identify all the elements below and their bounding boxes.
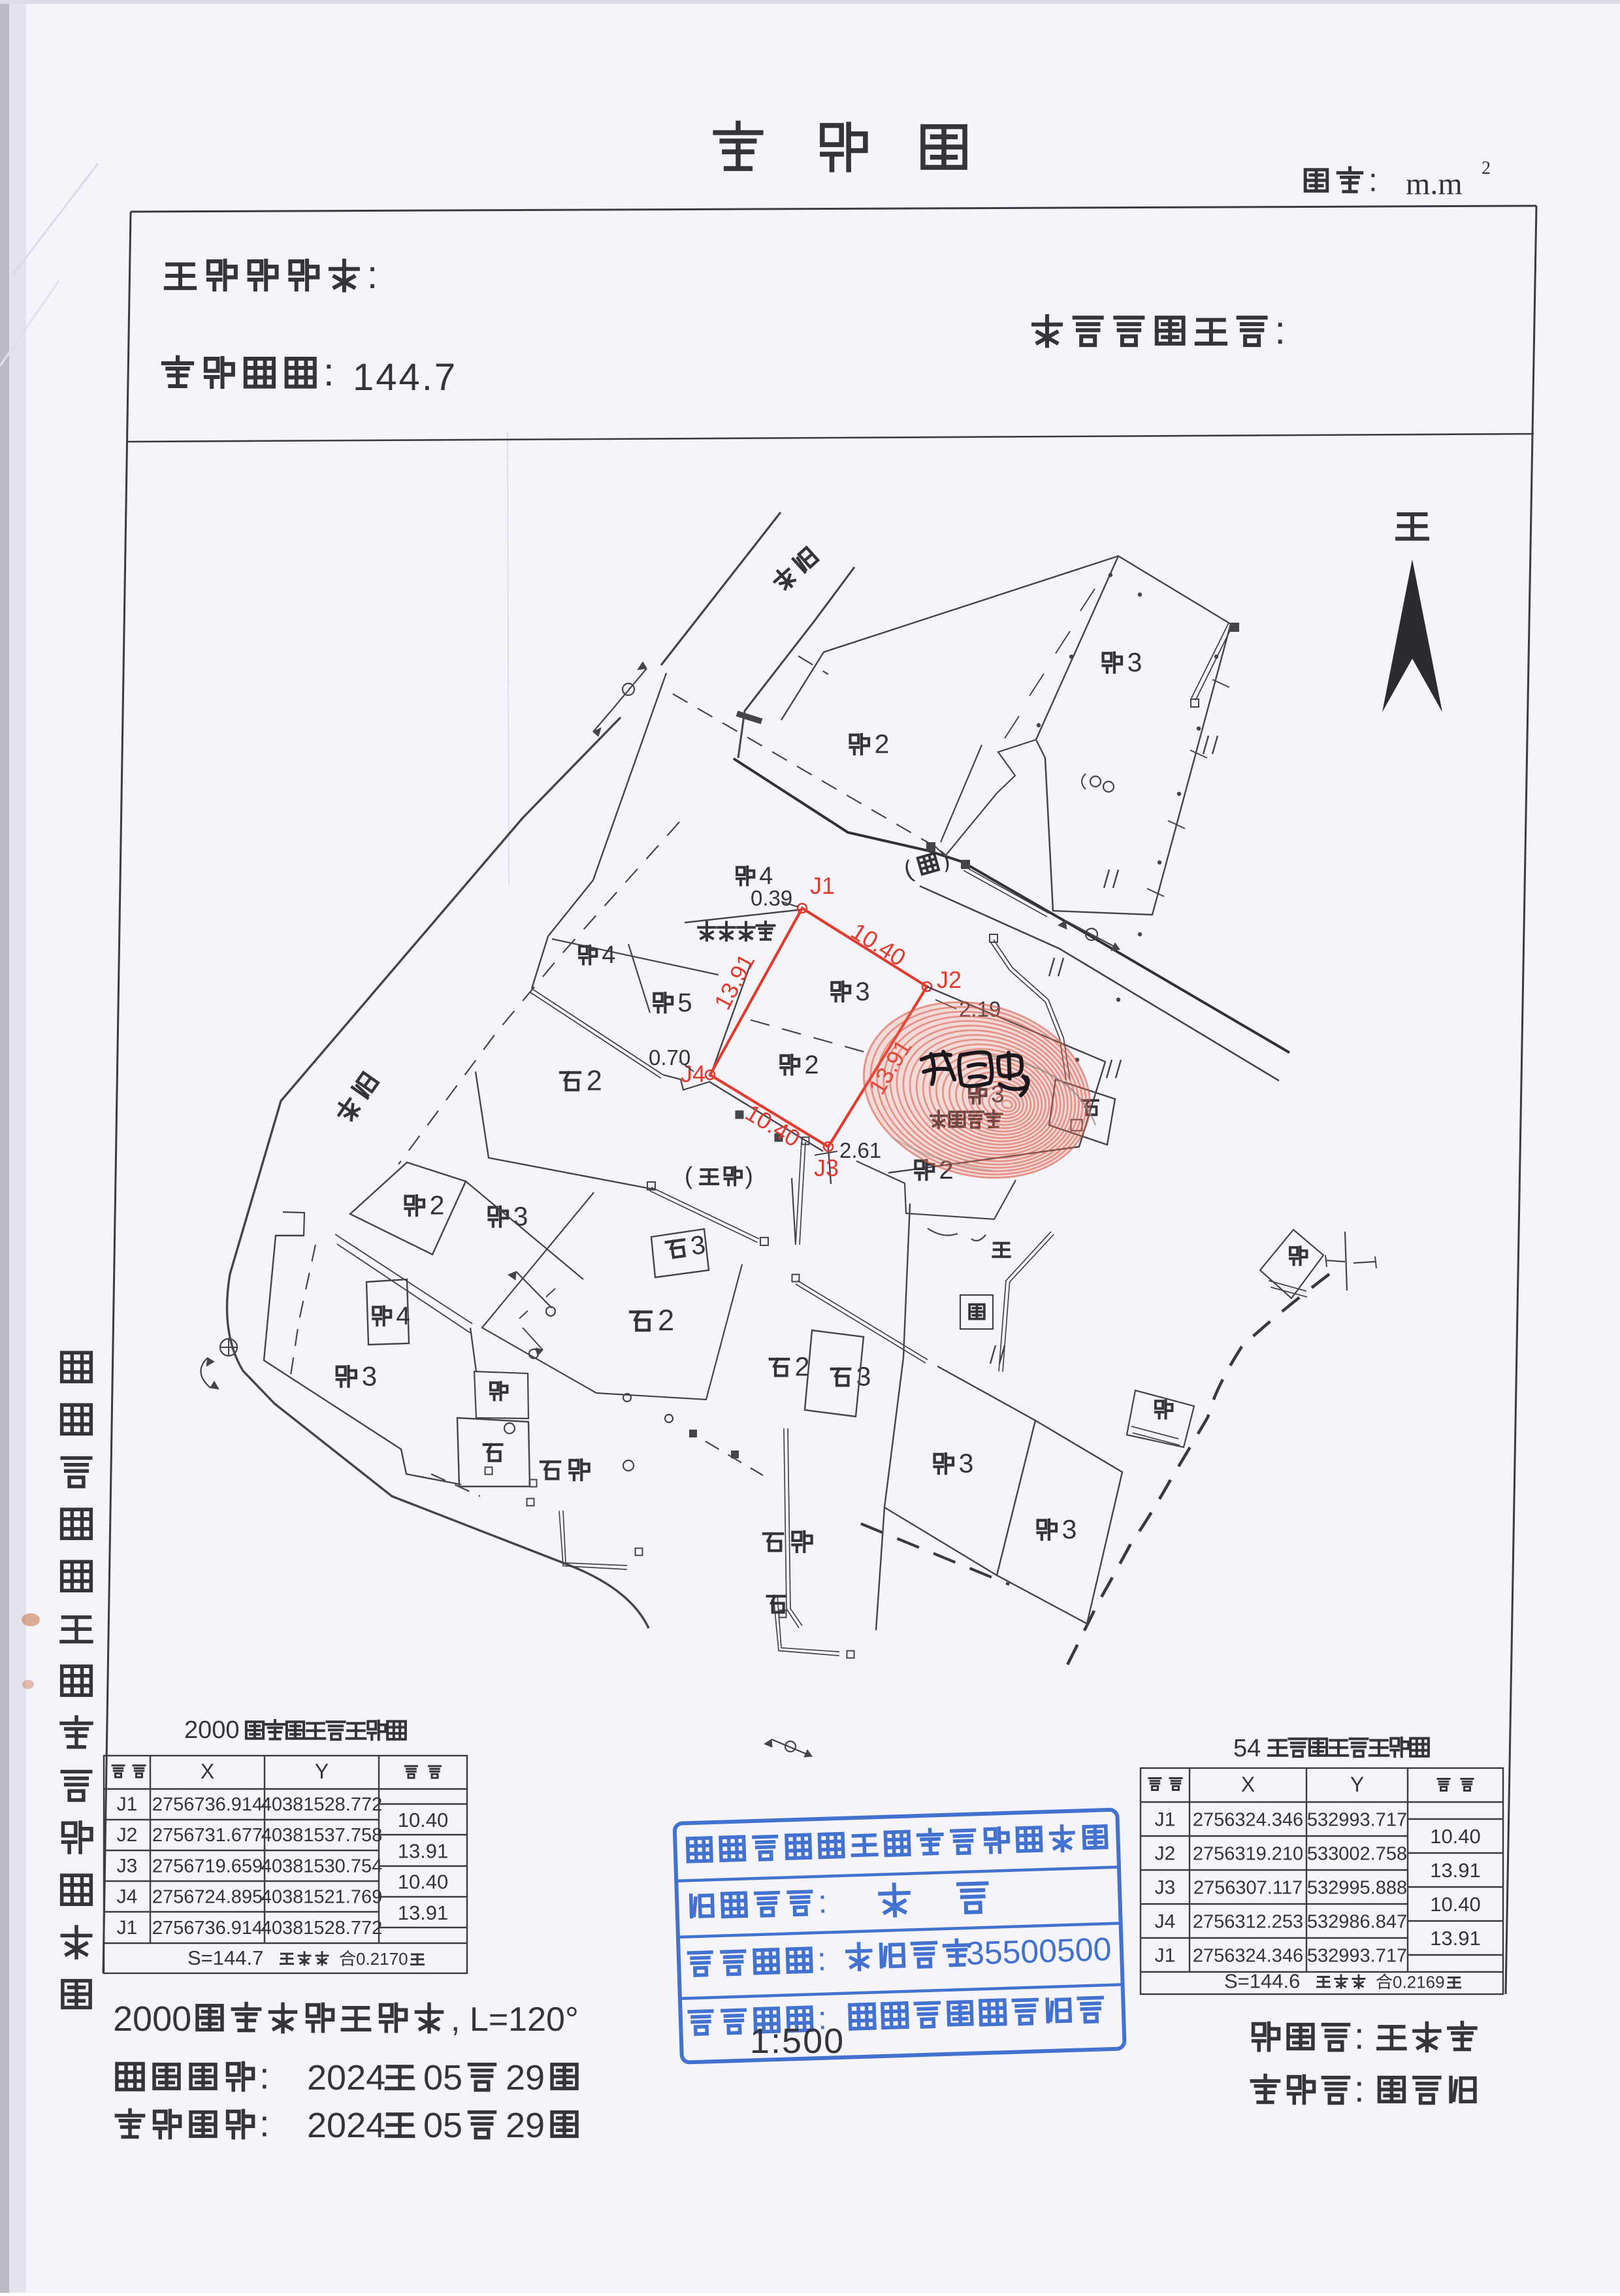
svg-text:532986.847: 532986.847 xyxy=(1307,1911,1407,1932)
svg-text:40381528.772: 40381528.772 xyxy=(261,1794,382,1815)
svg-text:合0.2170: 合0.2170 xyxy=(339,1949,408,1969)
svg-text:13.91: 13.91 xyxy=(1430,1927,1481,1950)
svg-text:1:500: 1:500 xyxy=(750,2022,845,2061)
svg-text:2756736.914: 2756736.914 xyxy=(152,1918,263,1939)
svg-text:2: 2 xyxy=(587,1065,602,1096)
svg-text:2756719.659: 2756719.659 xyxy=(152,1856,263,1877)
svg-text:J1: J1 xyxy=(810,872,835,899)
svg-text:X: X xyxy=(201,1760,214,1783)
svg-text:10.40: 10.40 xyxy=(398,1809,449,1831)
svg-text:533002.758: 533002.758 xyxy=(1307,1843,1407,1864)
svg-text:29: 29 xyxy=(506,2058,545,2097)
svg-text:): ) xyxy=(745,1162,753,1189)
svg-text:2756324.346: 2756324.346 xyxy=(1193,1945,1303,1966)
svg-text:Y: Y xyxy=(315,1760,329,1783)
svg-text:10.40: 10.40 xyxy=(1430,1825,1481,1848)
svg-text:29: 29 xyxy=(506,2106,545,2145)
svg-text:J4: J4 xyxy=(117,1886,138,1908)
svg-text:J2: J2 xyxy=(937,966,962,993)
svg-text:Y: Y xyxy=(1350,1773,1364,1796)
svg-text:2756724.895: 2756724.895 xyxy=(152,1887,263,1908)
svg-text:J1: J1 xyxy=(117,1917,138,1939)
svg-text:144.7: 144.7 xyxy=(353,356,457,399)
svg-text::: : xyxy=(1274,308,1286,352)
svg-text:532993.717: 532993.717 xyxy=(1307,1809,1407,1830)
svg-text:2024: 2024 xyxy=(307,2058,385,2097)
svg-text:2: 2 xyxy=(430,1190,445,1221)
svg-text:3: 3 xyxy=(1127,648,1142,678)
svg-text:2756319.210: 2756319.210 xyxy=(1193,1843,1303,1864)
svg-text:(: ( xyxy=(685,1162,692,1189)
svg-text::: : xyxy=(817,1941,827,1977)
svg-text:4: 4 xyxy=(759,862,773,890)
svg-text:, L=120°: , L=120° xyxy=(451,2001,579,2039)
svg-text:10.40: 10.40 xyxy=(1430,1893,1481,1916)
svg-text:J1: J1 xyxy=(117,1794,138,1815)
svg-text:S=144.7: S=144.7 xyxy=(187,1946,263,1969)
svg-text:2: 2 xyxy=(658,1304,674,1337)
svg-text::: : xyxy=(1354,2016,1365,2057)
svg-text:X: X xyxy=(1241,1773,1255,1796)
svg-text:13.91: 13.91 xyxy=(1430,1859,1481,1882)
svg-text:3: 3 xyxy=(1062,1515,1077,1545)
svg-text:3: 3 xyxy=(362,1361,377,1392)
svg-text:2: 2 xyxy=(804,1051,818,1079)
svg-text:3: 3 xyxy=(959,1449,974,1479)
svg-text::: : xyxy=(259,2103,270,2144)
svg-text:4: 4 xyxy=(396,1302,410,1330)
svg-text:J1: J1 xyxy=(1155,1944,1176,1966)
svg-text:35500500: 35500500 xyxy=(965,1931,1112,1972)
svg-text:J2: J2 xyxy=(1155,1843,1176,1864)
svg-text:J3: J3 xyxy=(1155,1877,1176,1898)
svg-text:S=144.6: S=144.6 xyxy=(1224,1970,1300,1993)
svg-text::: : xyxy=(367,252,378,297)
svg-text:40381530.754: 40381530.754 xyxy=(261,1856,382,1877)
svg-text:0.70: 0.70 xyxy=(649,1045,690,1070)
svg-text::: : xyxy=(818,1883,828,1920)
svg-text:J1: J1 xyxy=(1155,1809,1176,1830)
svg-text:2756731.677: 2756731.677 xyxy=(152,1825,263,1846)
svg-text:J3: J3 xyxy=(117,1855,138,1877)
svg-text:54: 54 xyxy=(1233,1735,1261,1762)
svg-text:4: 4 xyxy=(602,942,615,969)
svg-text::: : xyxy=(1354,2069,1365,2110)
svg-text::: : xyxy=(323,350,334,394)
svg-text:合0.2169: 合0.2169 xyxy=(1376,1973,1445,1992)
svg-text:2000: 2000 xyxy=(184,1716,240,1744)
svg-text:J4: J4 xyxy=(1155,1911,1176,1932)
svg-text:2: 2 xyxy=(1482,158,1491,178)
svg-text:m.m: m.m xyxy=(1406,167,1463,201)
svg-text:40381528.772: 40381528.772 xyxy=(261,1918,382,1939)
svg-text:2: 2 xyxy=(875,729,890,759)
svg-text:532993.717: 532993.717 xyxy=(1307,1945,1407,1966)
svg-text:532995.888: 532995.888 xyxy=(1307,1877,1407,1898)
svg-text:2.61: 2.61 xyxy=(839,1138,881,1162)
svg-text:10.40: 10.40 xyxy=(398,1871,449,1894)
svg-text:2756736.914: 2756736.914 xyxy=(152,1794,263,1815)
svg-text:13.91: 13.91 xyxy=(398,1901,449,1924)
svg-text:3: 3 xyxy=(855,977,869,1006)
svg-text:05: 05 xyxy=(423,2106,462,2145)
svg-text:2756324.346: 2756324.346 xyxy=(1193,1809,1303,1830)
svg-text:05: 05 xyxy=(423,2058,462,2097)
svg-text:40381537.758: 40381537.758 xyxy=(261,1825,382,1846)
svg-text::: : xyxy=(259,2056,270,2097)
svg-text:J3: J3 xyxy=(814,1155,839,1181)
svg-text::: : xyxy=(1369,162,1378,199)
svg-text:40381521.769: 40381521.769 xyxy=(261,1887,382,1908)
svg-text:2000: 2000 xyxy=(113,1999,191,2039)
svg-text:13.91: 13.91 xyxy=(398,1839,449,1862)
svg-text:2756307.117: 2756307.117 xyxy=(1193,1877,1303,1898)
svg-text:J2: J2 xyxy=(117,1824,138,1846)
svg-text:5: 5 xyxy=(677,989,692,1017)
svg-text:2024: 2024 xyxy=(307,2106,385,2145)
svg-text:2756312.253: 2756312.253 xyxy=(1193,1911,1303,1932)
